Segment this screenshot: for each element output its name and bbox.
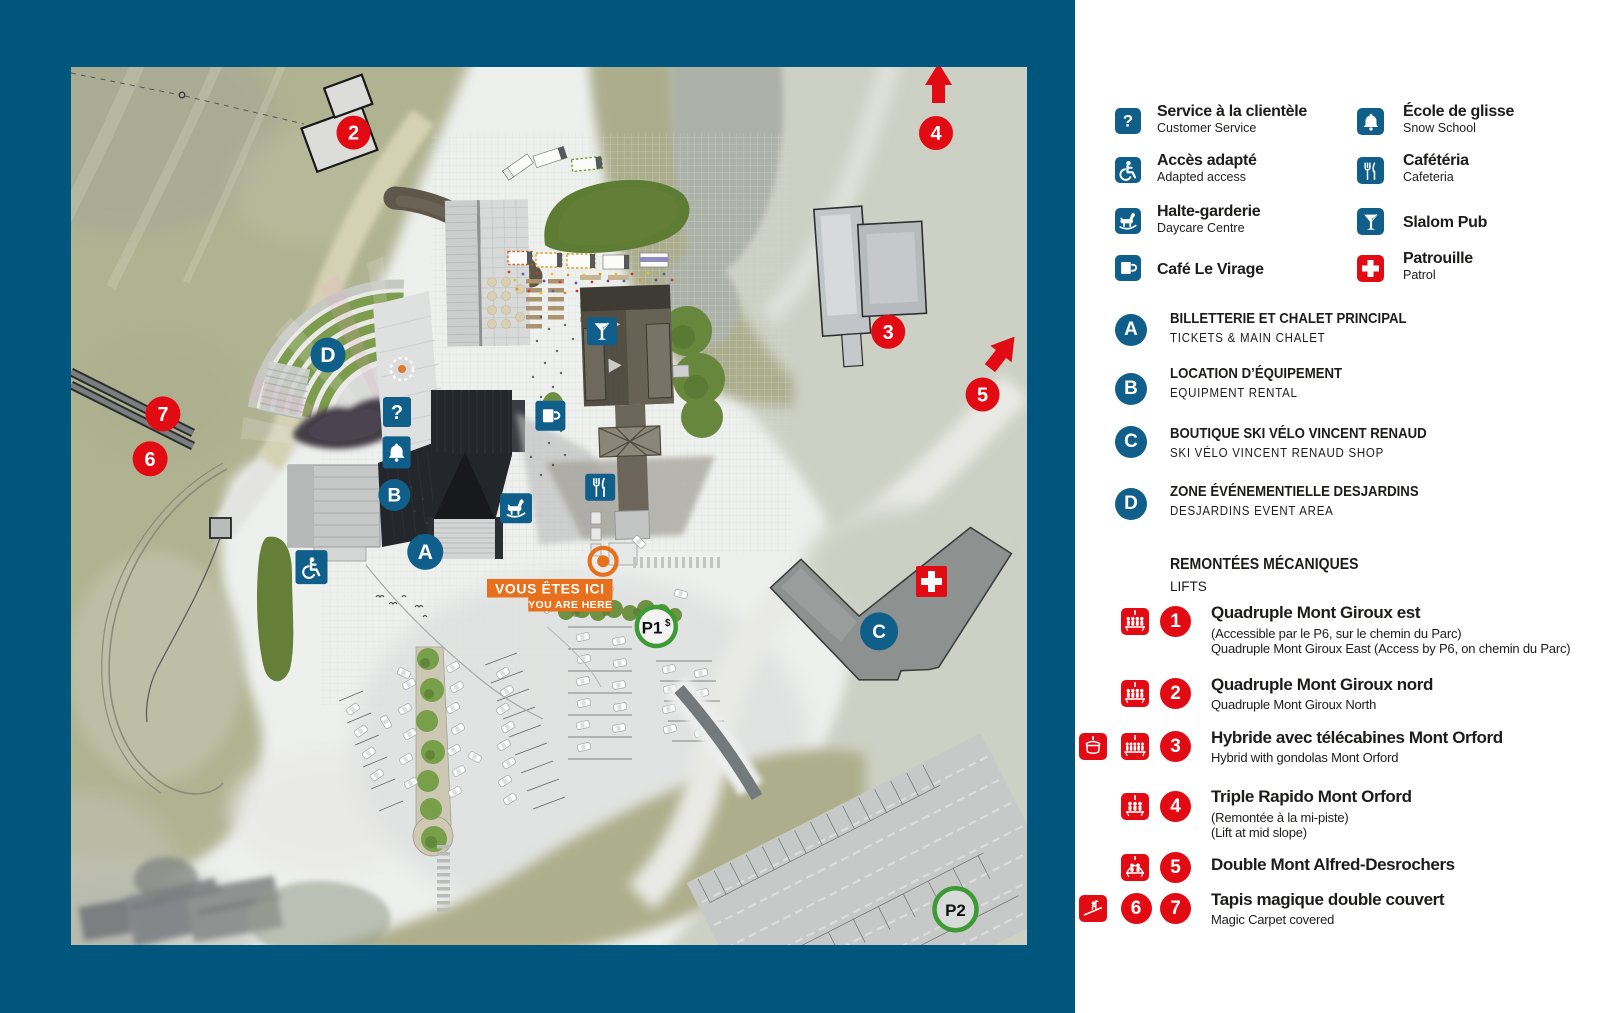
svg-text:5: 5	[977, 385, 988, 407]
svg-text:P1: P1	[642, 619, 663, 638]
svg-text:6: 6	[145, 449, 156, 471]
svg-text:3: 3	[883, 322, 894, 344]
svg-text:B: B	[388, 486, 402, 507]
svg-text:?: ?	[1123, 112, 1133, 131]
svg-text:4: 4	[930, 123, 942, 145]
svg-text:VOUS ÊTES ICI: VOUS ÊTES ICI	[495, 580, 605, 597]
svg-text:A: A	[418, 541, 433, 564]
svg-text:C: C	[872, 622, 886, 643]
svg-text:D: D	[320, 344, 335, 367]
svg-text:7: 7	[157, 404, 168, 426]
svg-text:2: 2	[348, 123, 359, 145]
svg-text:P2: P2	[945, 901, 966, 920]
svg-text:$: $	[665, 618, 671, 629]
svg-text:YOU ARE HERE: YOU ARE HERE	[528, 599, 612, 611]
